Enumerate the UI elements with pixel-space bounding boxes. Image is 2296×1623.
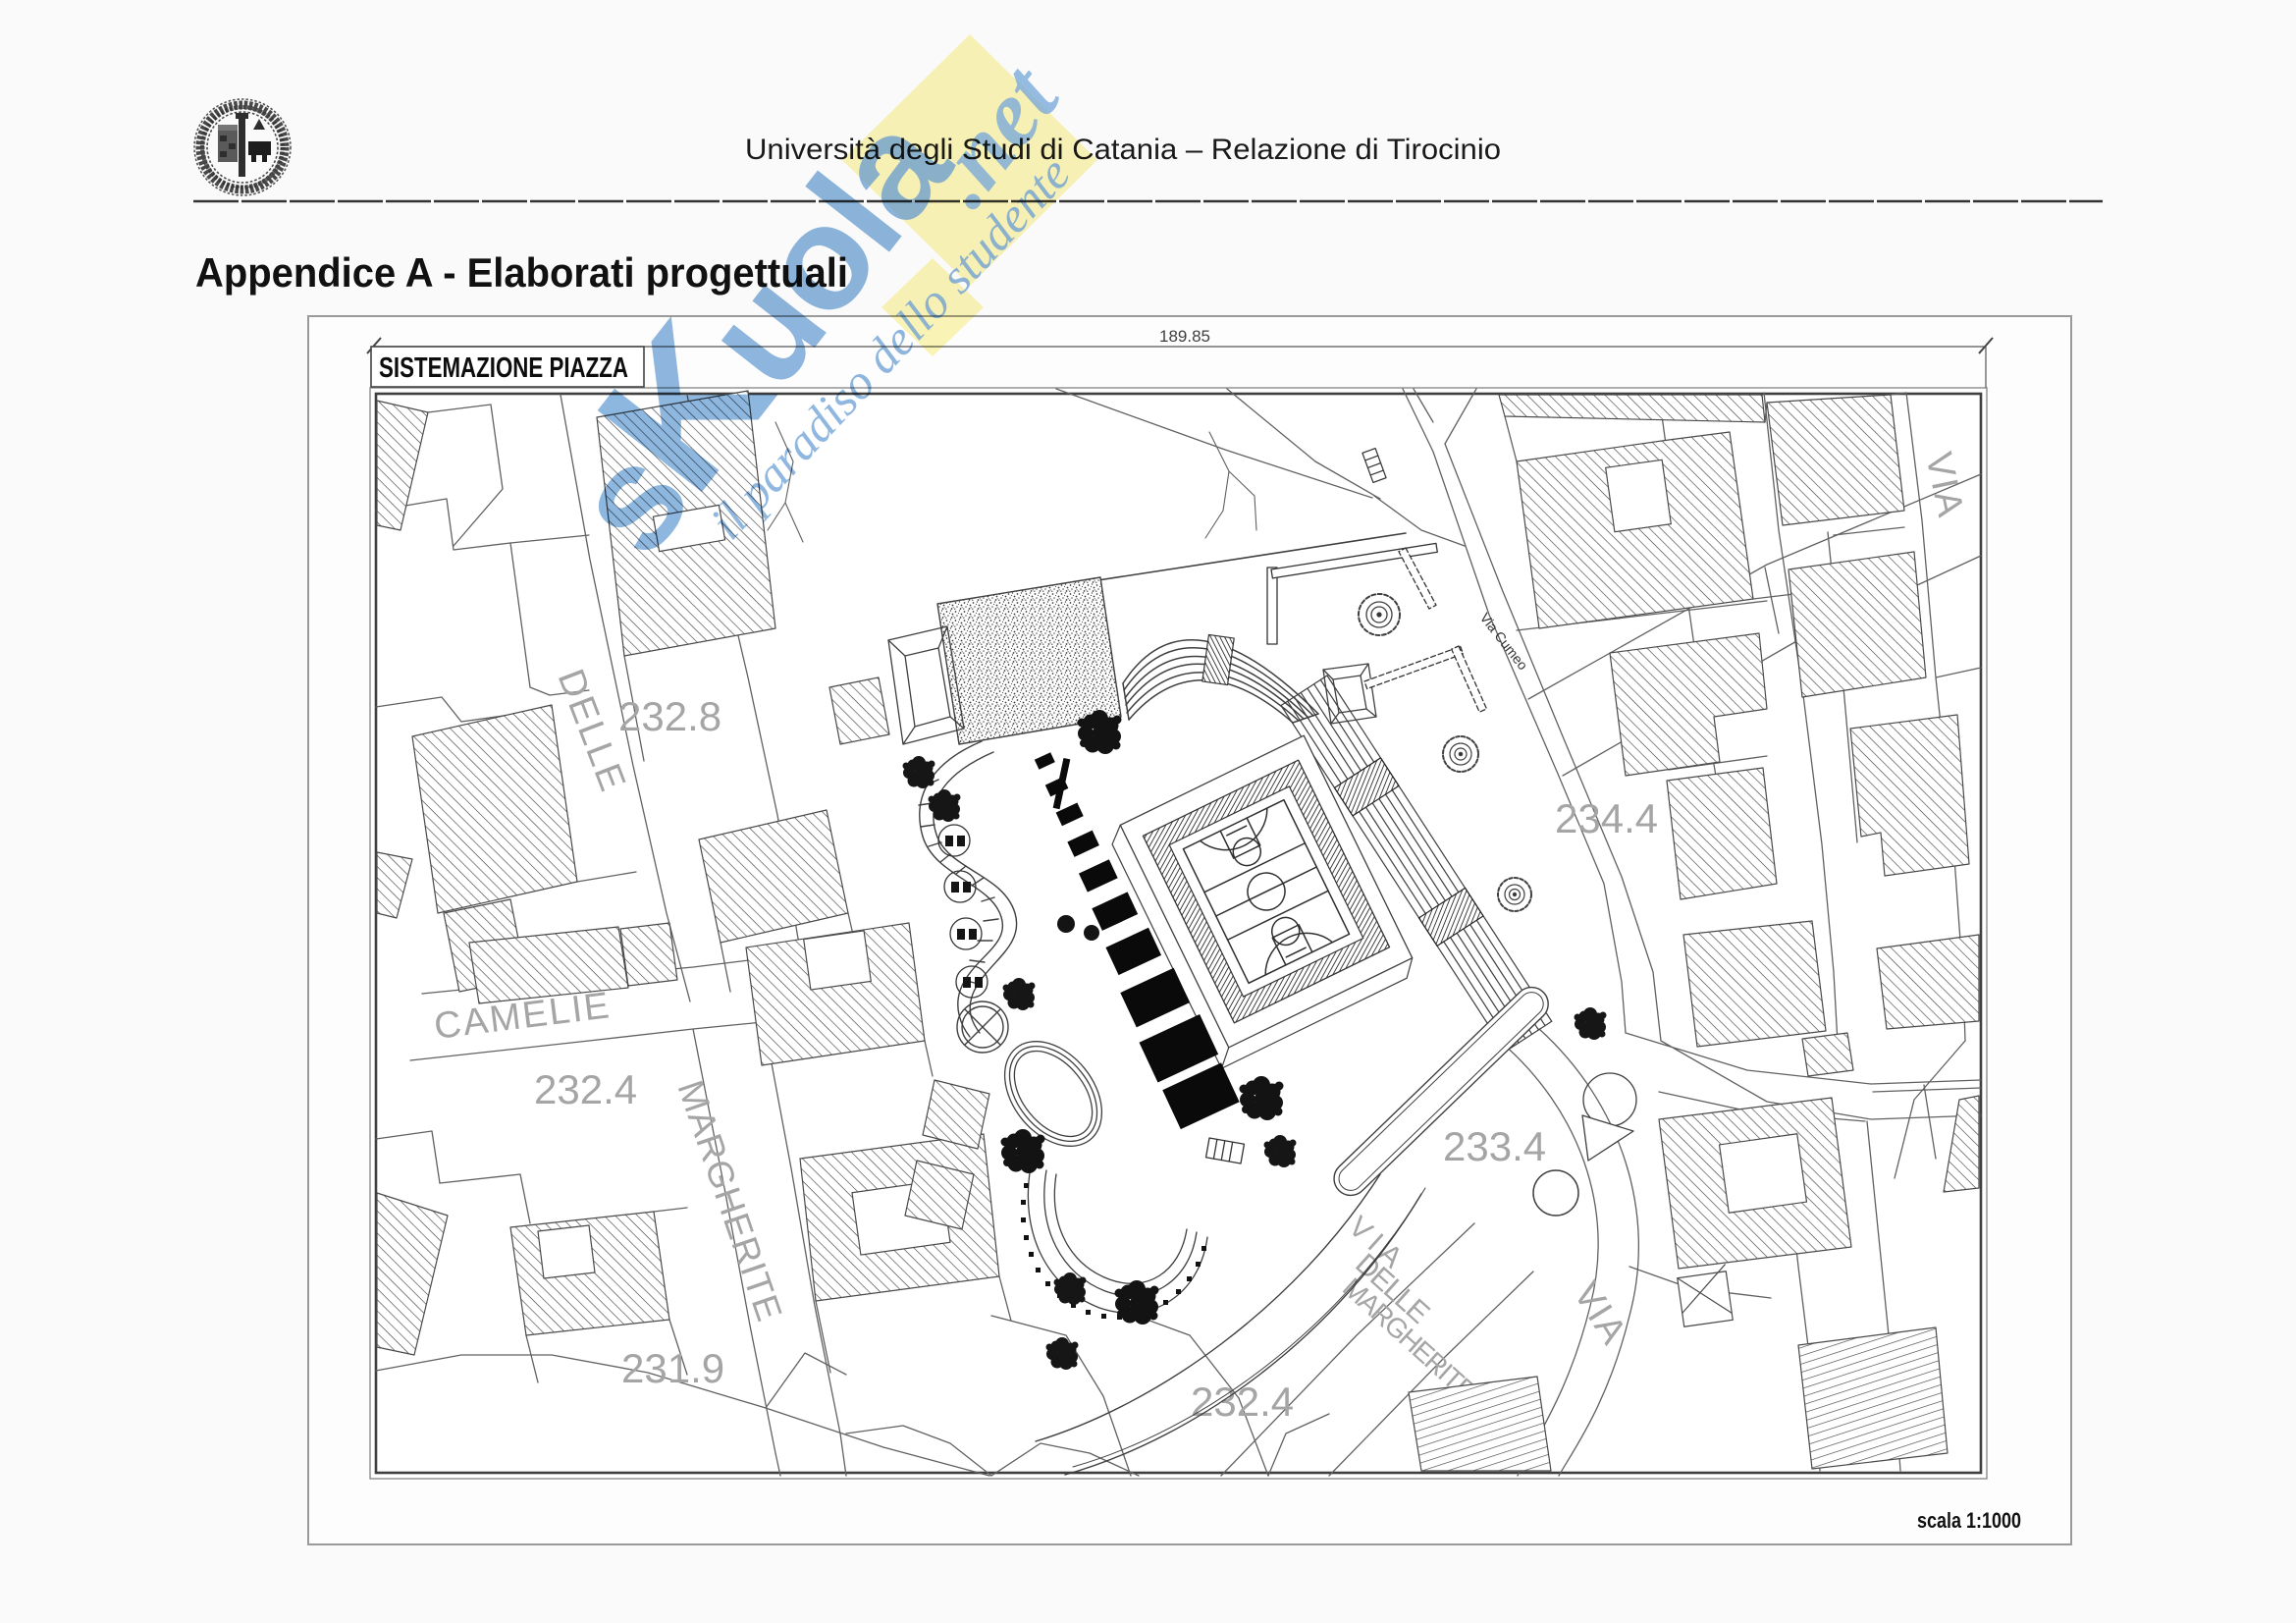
svg-text:233.4: 233.4 xyxy=(1443,1123,1546,1169)
svg-text:234.4: 234.4 xyxy=(1555,795,1658,841)
svg-text:189.85: 189.85 xyxy=(1159,327,1210,346)
svg-text:231.9: 231.9 xyxy=(621,1345,724,1391)
svg-text:232.4: 232.4 xyxy=(1191,1379,1294,1425)
svg-text:232.4: 232.4 xyxy=(534,1066,637,1112)
svg-text:scala 1:1000: scala 1:1000 xyxy=(1917,1508,2021,1533)
svg-text:·•·•·: ·•·•· xyxy=(234,183,252,191)
svg-text:232.8: 232.8 xyxy=(618,693,721,739)
